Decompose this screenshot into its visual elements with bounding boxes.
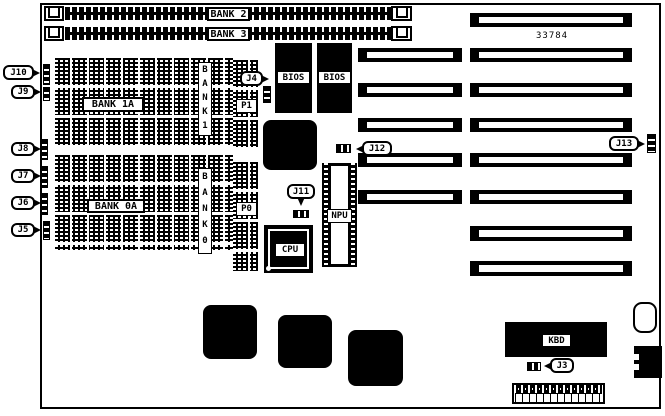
power-connector	[512, 383, 605, 404]
qfp-chip-3	[348, 330, 403, 386]
chipset-qfp	[263, 120, 317, 170]
jumper-j12	[336, 144, 351, 153]
jumper-label-j11: J11	[287, 184, 315, 199]
jumper-j4	[263, 86, 271, 103]
jumper-j9	[43, 87, 50, 101]
din-notch	[634, 354, 639, 360]
jumper-label-j12: J12	[362, 141, 392, 156]
jumper-j7	[41, 166, 48, 188]
expansion-slot-16bit-1	[470, 13, 632, 27]
kbd-label: KBD	[542, 334, 571, 347]
expansion-slot-16bit-2	[470, 48, 632, 62]
cpu-label: CPU	[275, 243, 305, 257]
jumper-label-j3: J3	[550, 358, 574, 373]
expansion-slot-16bit-6	[470, 190, 632, 204]
jumper-j13	[647, 134, 656, 153]
bank0-vertical-label: BANK0	[198, 168, 212, 254]
expansion-slot-16bit-7	[470, 226, 632, 241]
p1-label: P1	[236, 99, 257, 113]
motherboard-diagram: BANK 2 BANK 3 BANK 1A BANK 0A BANK1 BANK…	[0, 0, 665, 416]
expansion-slot-8bit-2	[358, 83, 462, 97]
bank1-vertical-label: BANK1	[198, 62, 212, 136]
din-notch	[634, 364, 639, 370]
jumper-j8	[41, 139, 48, 160]
power-connector-sockets	[515, 393, 602, 402]
keyboard-din-connector	[634, 346, 662, 378]
jumper-label-j10: J10	[3, 65, 34, 80]
npu-label: NPU	[327, 209, 352, 223]
simm-socket-left-clip	[44, 6, 64, 21]
jumper-j11	[293, 210, 309, 218]
expansion-slot-8bit-5	[358, 190, 462, 204]
expansion-slot-16bit-4	[470, 118, 632, 132]
bank2-label: BANK 2	[207, 7, 250, 21]
expansion-slot-16bit-3	[470, 83, 632, 97]
bios2-label: BIOS	[318, 71, 351, 84]
jumper-j6	[41, 193, 48, 215]
simm-socket-left-clip	[44, 26, 64, 41]
expansion-slot-8bit-3	[358, 118, 462, 132]
expansion-slot-16bit-8	[470, 261, 632, 276]
jumper-label-j7: J7	[11, 169, 35, 183]
p0-label: P0	[236, 202, 257, 216]
jumper-j5	[43, 221, 50, 240]
part-number-text: 33784	[536, 31, 568, 41]
bank1a-label: BANK 1A	[82, 97, 144, 112]
bank3-label: BANK 3	[207, 27, 250, 41]
qfp-chip-1	[203, 305, 257, 359]
jumper-j3	[527, 362, 541, 371]
expansion-slot-8bit-1	[358, 48, 462, 62]
qfp-chip-2	[278, 315, 332, 368]
dram-column-p0	[233, 162, 258, 271]
jumper-label-j9: J9	[11, 85, 35, 99]
jumper-label-j8: J8	[11, 142, 35, 156]
jumper-label-j4: J4	[240, 71, 263, 86]
jumper-label-j6: J6	[11, 196, 35, 210]
bank0a-label: BANK 0A	[87, 199, 145, 213]
expansion-slot-16bit-5	[470, 153, 632, 167]
jumper-label-j13: J13	[609, 136, 639, 151]
simm-socket-right-clip	[391, 26, 412, 41]
mounting-cutout-outline	[633, 302, 657, 333]
power-connector-pins	[515, 385, 602, 393]
jumper-j10	[43, 64, 50, 85]
jumper-label-j5: J5	[11, 223, 35, 237]
simm-socket-right-clip	[391, 6, 412, 21]
bios1-label: BIOS	[277, 71, 310, 84]
